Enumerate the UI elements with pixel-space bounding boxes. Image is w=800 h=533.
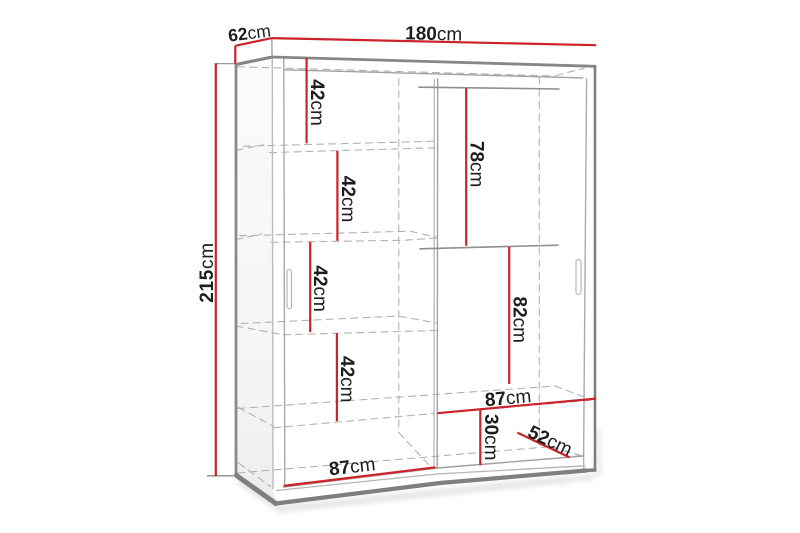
svg-text:215cm: 215cm	[197, 242, 218, 303]
svg-text:180cm: 180cm	[405, 23, 462, 45]
svg-text:42cm: 42cm	[306, 79, 327, 125]
svg-text:78cm: 78cm	[465, 141, 486, 187]
svg-text:87cm: 87cm	[484, 386, 532, 411]
svg-text:42cm: 42cm	[336, 356, 357, 402]
svg-text:42cm: 42cm	[309, 265, 330, 311]
svg-text:82cm: 82cm	[508, 297, 529, 343]
svg-text:42cm: 42cm	[337, 176, 358, 222]
svg-text:30cm: 30cm	[480, 414, 501, 460]
